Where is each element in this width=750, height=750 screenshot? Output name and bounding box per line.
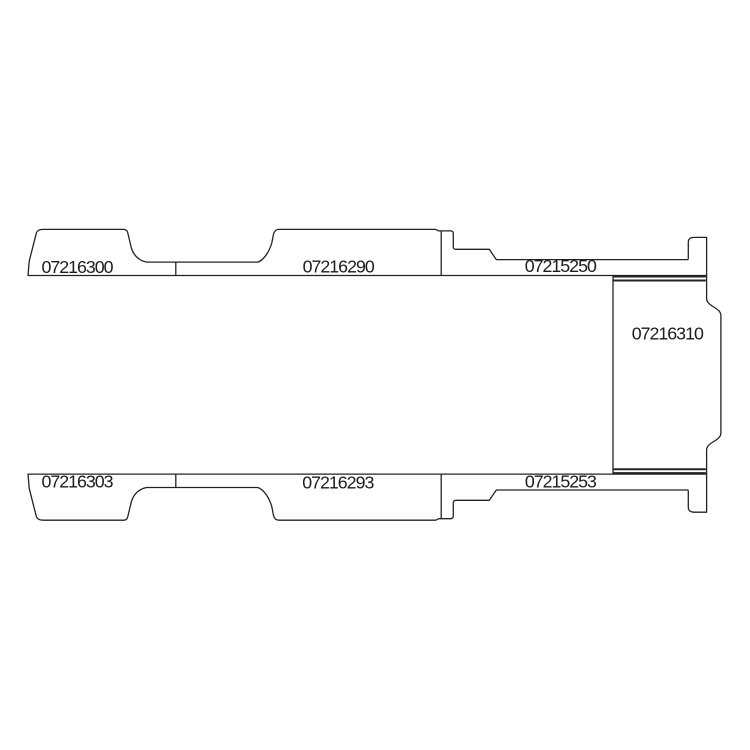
svg-text:07215250: 07215250 bbox=[525, 256, 597, 276]
svg-text:07216303: 07216303 bbox=[41, 472, 113, 492]
svg-text:07216300: 07216300 bbox=[41, 257, 113, 277]
svg-text:07216310: 07216310 bbox=[632, 323, 704, 343]
svg-text:07216290: 07216290 bbox=[303, 257, 375, 277]
svg-text:07215253: 07215253 bbox=[525, 471, 597, 491]
svg-text:07216293: 07216293 bbox=[302, 473, 374, 493]
